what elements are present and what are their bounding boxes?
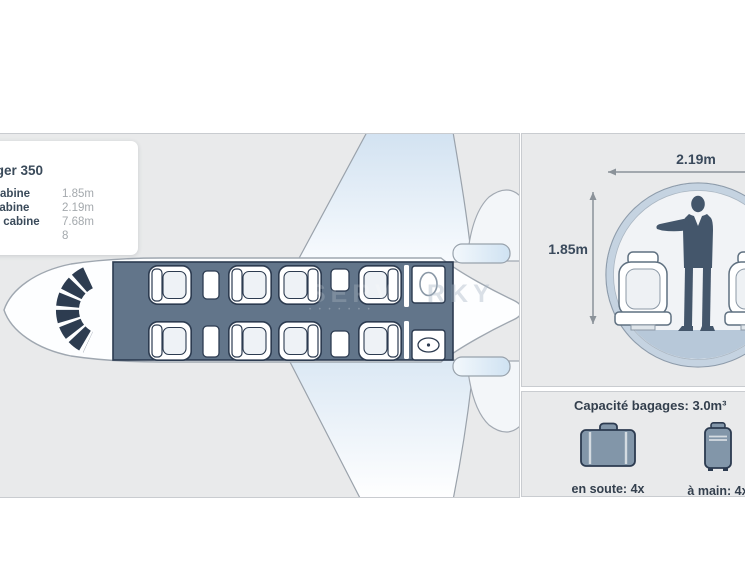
seat — [279, 320, 321, 362]
wing-upper — [297, 134, 472, 262]
hand-baggage-label: à main: 4x — [668, 484, 745, 497]
spec-label: Longueur cabine — [0, 215, 62, 229]
svg-text:RKY: RKY — [427, 280, 495, 308]
seat — [359, 320, 401, 362]
cabin-height-label: 1.85m — [548, 241, 588, 257]
baggage-heading: Capacité bagages: 3.0m³ — [522, 398, 745, 413]
baggage-panel: Capacité bagages: 3.0m³ en soute: 4x à m… — [521, 391, 745, 497]
wing-lower — [289, 360, 474, 498]
spec-row-length: Longueur cabine 7.68m — [0, 215, 126, 229]
spec-value: 8 — [62, 229, 68, 243]
seat — [149, 320, 191, 362]
spec-value: 2.19m — [62, 201, 94, 215]
seat — [229, 320, 271, 362]
baggage-hold-column: en soute: 4x — [558, 422, 658, 496]
aircraft-spec-card: Challenger 350 Hauteur cabine 1.85m Larg… — [0, 141, 138, 255]
seat — [149, 264, 191, 306]
spec-label: Hauteur cabine — [0, 187, 62, 201]
spec-row-height: Hauteur cabine 1.85m — [0, 187, 126, 201]
aircraft-title: Challenger 350 — [0, 163, 126, 178]
infographic-page: { "info_card": { "title": "Challenger 35… — [0, 0, 745, 581]
svg-text:SERV: SERV — [309, 280, 397, 308]
spec-row-passengers: Passagers 8 — [0, 229, 126, 243]
carry-on-icon — [698, 422, 738, 472]
spec-row-width: Largeur cabine 2.19m — [0, 201, 126, 215]
cabin-width-label: 2.19m — [676, 151, 716, 167]
hold-baggage-label: en soute: 4x — [558, 482, 658, 496]
seat — [229, 264, 271, 306]
lavatory-sink — [412, 330, 445, 360]
spec-label: Largeur cabine — [0, 201, 62, 215]
cross-section-panel: 2.19m 1.85m — [521, 133, 745, 387]
cabin-cross-section: 2.19m 1.85m — [522, 134, 745, 386]
suitcase-icon — [576, 422, 640, 470]
spec-value: 1.85m — [62, 187, 94, 201]
spec-value: 7.68m — [62, 215, 94, 229]
svg-text:• • • • • • •: • • • • • • • — [309, 307, 373, 313]
baggage-hand-column: à main: 4x — [668, 422, 745, 497]
